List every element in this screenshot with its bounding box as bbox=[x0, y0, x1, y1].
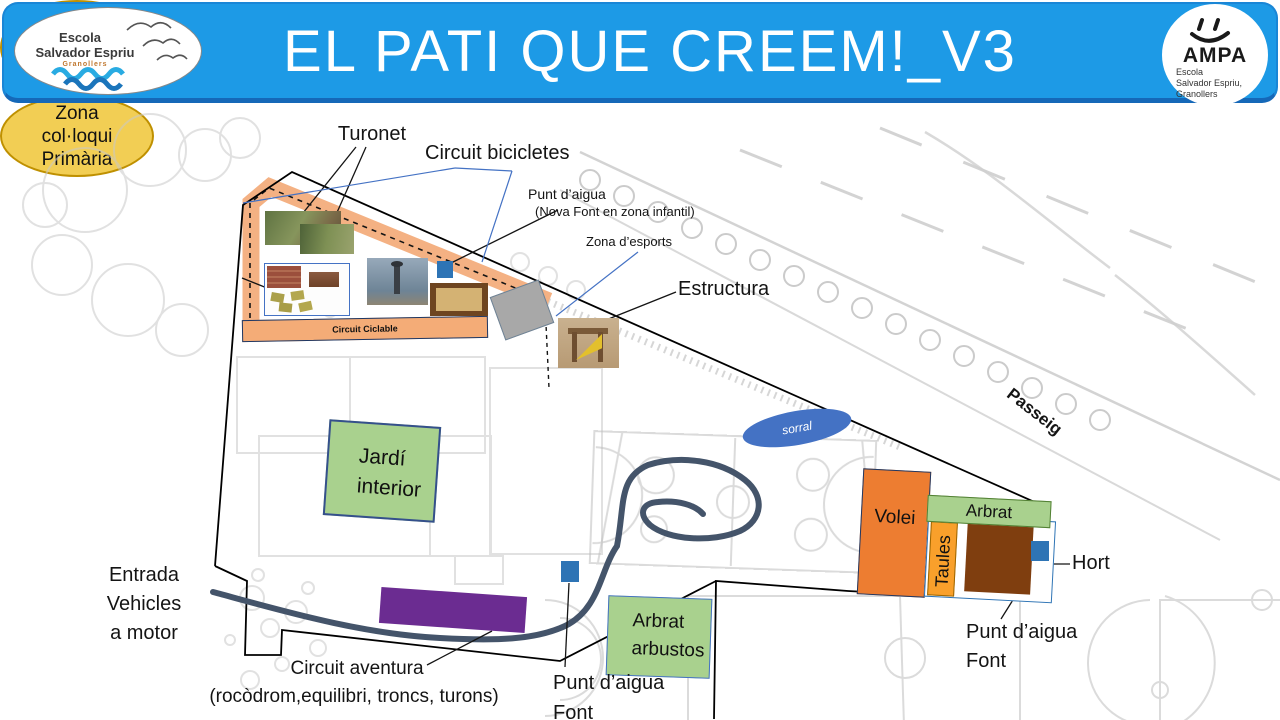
photo-turonet-2 bbox=[300, 224, 354, 254]
entrada-line3: a motor bbox=[85, 619, 203, 648]
photo-sorral-box bbox=[430, 283, 488, 316]
picnic-table-icon bbox=[298, 301, 313, 313]
punt-aigua-left-line2: Font bbox=[553, 698, 664, 720]
taules-label: Taules bbox=[931, 524, 955, 599]
zone-jardi-interior: Jardí interior bbox=[323, 419, 441, 523]
volei-label: Volei bbox=[874, 506, 916, 529]
entrada-line2: Vehicles bbox=[85, 590, 203, 619]
arbrat-arbustos-label-1: Arbrat bbox=[632, 607, 711, 638]
photo-estructura bbox=[558, 318, 619, 368]
slide-canvas: EL PATI QUE CREEM!_V3 Escola Salvador Es… bbox=[0, 0, 1280, 720]
punt-aigua-right-line2: Font bbox=[966, 647, 1077, 676]
photo-shed bbox=[309, 272, 339, 287]
callout-punt-aigua-nova-sub: (Nova Font en zona infantil) bbox=[535, 204, 695, 220]
punt-aigua-left-line1: Punt d’aigua bbox=[553, 668, 664, 698]
arbrat-label: Arbrat bbox=[965, 501, 1012, 522]
arbrat-arbustos-label-2: arbustos bbox=[631, 635, 710, 666]
zone-volei: Volei bbox=[857, 468, 932, 597]
water-point-hort bbox=[1031, 541, 1049, 561]
fountain-silhouette bbox=[394, 264, 400, 294]
callout-estructura: Estructura bbox=[678, 277, 769, 301]
photo-font-feature bbox=[367, 258, 428, 305]
sorral-label: sorral bbox=[781, 419, 813, 438]
callout-circuit-aventura-sub: (rocòdrom,equilibri, troncs, turons) bbox=[186, 685, 522, 709]
zone-circuit-ciclable-bar: Circuit Ciclable bbox=[242, 316, 488, 342]
fountain-top bbox=[391, 261, 403, 267]
callout-punt-aigua-nova: Punt d’aigua bbox=[528, 186, 606, 202]
picnic-table-icon bbox=[270, 292, 284, 303]
photo-collage-infantil bbox=[264, 263, 350, 316]
photo-brick-building bbox=[267, 266, 301, 288]
circuit-ciclable-label: Circuit Ciclable bbox=[332, 323, 398, 334]
sand-fill bbox=[436, 288, 482, 311]
jardi-label-2: interior bbox=[356, 471, 436, 506]
callout-circuit-bicicletes: Circuit bicicletes bbox=[425, 141, 569, 165]
callout-punt-aigua-right: Punt d’aigua Font bbox=[966, 618, 1077, 676]
callout-circuit-aventura: Circuit aventura bbox=[272, 657, 442, 681]
callout-punt-aigua-left: Punt d’aigua Font bbox=[553, 668, 664, 720]
structure-post bbox=[572, 332, 577, 362]
zone-arbrat-arbustos: Arbrat arbustos bbox=[606, 595, 713, 679]
zone-taules: Taules bbox=[927, 521, 958, 596]
punt-aigua-right-line1: Punt d’aigua bbox=[966, 618, 1077, 647]
water-point-left bbox=[561, 561, 579, 582]
entrada-line1: Entrada bbox=[85, 561, 203, 590]
picnic-table-icon bbox=[279, 302, 293, 312]
callout-entrada: Entrada Vehicles a motor bbox=[85, 561, 203, 648]
zone-hort-brown bbox=[964, 519, 1034, 594]
callout-zona-esports: Zona d’esports bbox=[586, 234, 672, 250]
callout-hort: Hort bbox=[1072, 551, 1110, 575]
callout-turonet: Turonet bbox=[327, 122, 417, 146]
water-point-infantil bbox=[437, 261, 453, 278]
picnic-table-icon bbox=[290, 290, 304, 301]
